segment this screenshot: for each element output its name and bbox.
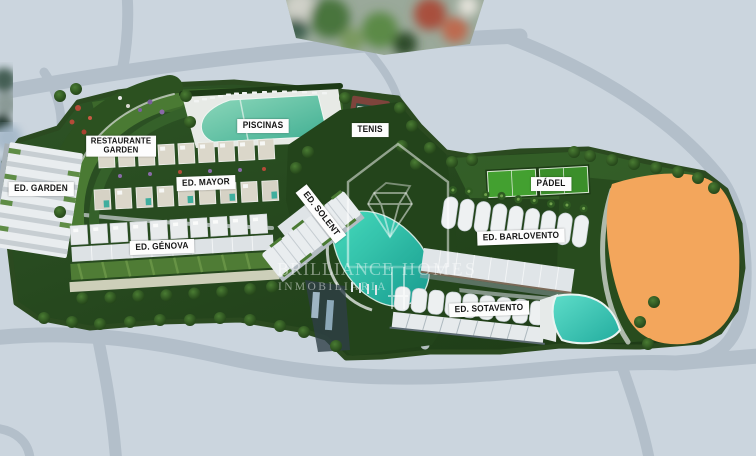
label-restaurante-line2: GARDEN	[103, 145, 138, 155]
map-art	[0, 0, 756, 456]
label-ed-genova: ED. GÉNOVA	[130, 239, 195, 255]
label-ed-mayor: ED. MAYOR	[176, 175, 235, 191]
label-ed-garden: ED. GARDEN	[9, 182, 74, 196]
label-ed-sotavento: ED. SOTAVENTO	[449, 301, 529, 318]
label-piscinas: PISCINAS	[237, 119, 289, 133]
label-padel: PÁDEL	[531, 177, 571, 191]
label-restaurante-garden: RESTAURANTEGARDEN	[86, 136, 156, 157]
label-tenis: TENIS	[352, 123, 388, 137]
site-plan: BRILLIANCE HOMES INMOBILIARIA ED. GARDEN…	[0, 0, 756, 456]
